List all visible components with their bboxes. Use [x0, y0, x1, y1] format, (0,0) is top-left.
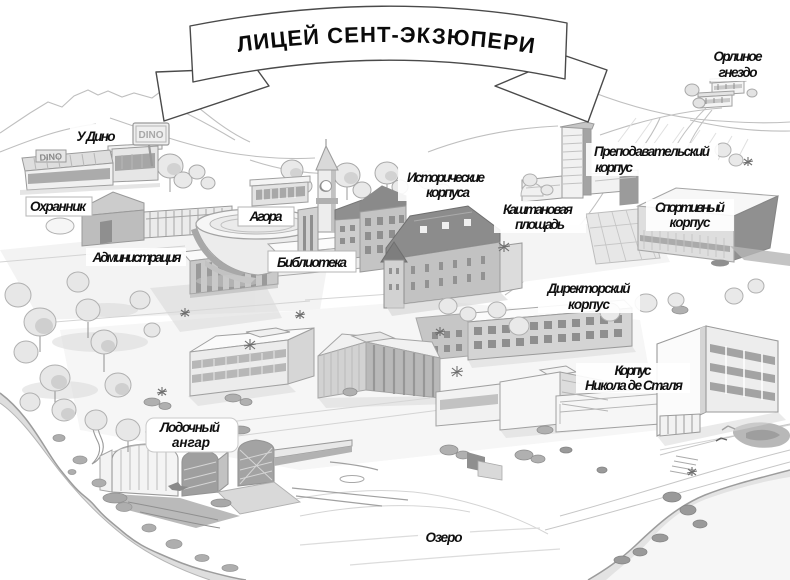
- svg-text:корпус: корпус: [670, 215, 711, 230]
- svg-text:корпуса: корпуса: [426, 185, 470, 200]
- svg-text:ангар: ангар: [172, 435, 210, 450]
- svg-text:Орлиное: Орлиное: [714, 49, 763, 64]
- svg-text:корпус: корпус: [568, 297, 610, 312]
- svg-text:DINO: DINO: [39, 151, 62, 163]
- svg-text:Преподавательский: Преподавательский: [594, 144, 711, 159]
- svg-text:корпус: корпус: [595, 160, 633, 175]
- svg-text:Агора: Агора: [249, 209, 283, 224]
- svg-text:У Дино: У Дино: [77, 129, 116, 144]
- svg-text:Никола де Сталя: Никола де Сталя: [585, 378, 683, 393]
- svg-text:гнездо: гнездо: [719, 65, 758, 80]
- svg-text:Администрация: Администрация: [92, 250, 182, 265]
- svg-text:площадь: площадь: [515, 217, 565, 232]
- svg-text:DINO: DINO: [139, 130, 164, 141]
- svg-text:Библиотека: Библиотека: [277, 255, 347, 270]
- svg-text:Спортивный: Спортивный: [655, 200, 726, 215]
- svg-text:Директорский: Директорский: [547, 281, 632, 296]
- svg-text:Каштановая: Каштановая: [503, 202, 573, 217]
- svg-text:Охранник: Охранник: [30, 199, 87, 214]
- svg-text:Корпус: Корпус: [615, 363, 652, 378]
- svg-text:Озеро: Озеро: [426, 530, 463, 545]
- svg-text:Лодочный: Лодочный: [159, 420, 221, 435]
- svg-text:Исторические: Исторические: [407, 170, 485, 185]
